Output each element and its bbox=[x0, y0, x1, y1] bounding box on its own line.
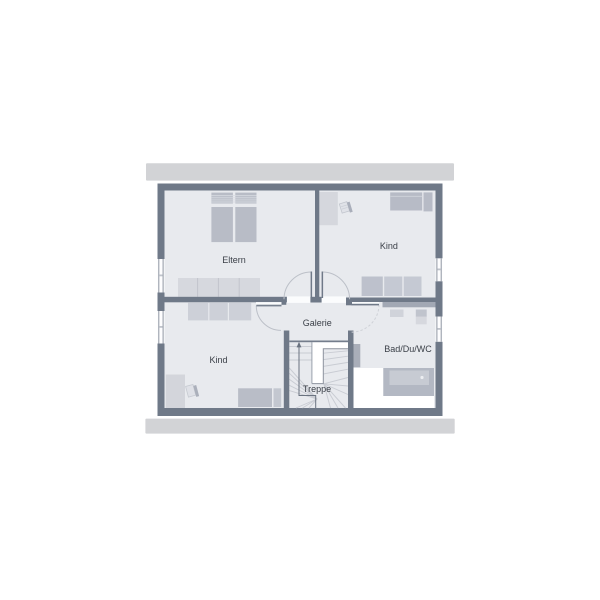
svg-text:Galerie: Galerie bbox=[303, 318, 332, 328]
svg-text:Bad/Du/WC: Bad/Du/WC bbox=[384, 344, 432, 354]
svg-text:Eltern: Eltern bbox=[222, 255, 246, 265]
svg-text:Kind: Kind bbox=[380, 241, 398, 251]
svg-text:Treppe: Treppe bbox=[303, 384, 331, 394]
svg-text:Kind: Kind bbox=[209, 355, 227, 365]
